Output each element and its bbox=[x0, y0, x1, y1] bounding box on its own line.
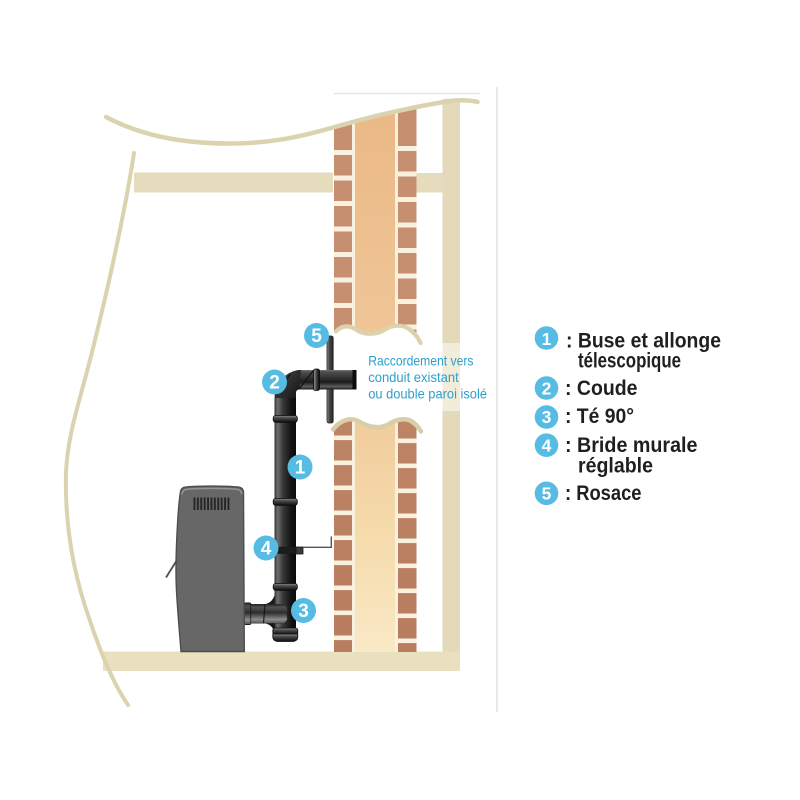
svg-text:5: 5 bbox=[311, 326, 322, 347]
svg-text:télescopique: télescopique bbox=[578, 350, 681, 373]
svg-text:5: 5 bbox=[542, 484, 552, 504]
svg-text:: Té 90°: : Té 90° bbox=[565, 405, 634, 428]
svg-text:3: 3 bbox=[298, 601, 309, 622]
svg-text:conduit existant: conduit existant bbox=[368, 370, 459, 385]
svg-text:: Rosace: : Rosace bbox=[565, 482, 642, 505]
svg-text:4: 4 bbox=[542, 436, 552, 456]
svg-text:réglable: réglable bbox=[578, 455, 653, 478]
svg-text:ou double paroi isolé: ou double paroi isolé bbox=[368, 386, 487, 401]
svg-text:3: 3 bbox=[542, 407, 552, 427]
svg-text:1: 1 bbox=[542, 329, 552, 349]
svg-text:2: 2 bbox=[542, 379, 552, 399]
svg-text:: Coude: : Coude bbox=[565, 377, 638, 400]
svg-text:1: 1 bbox=[295, 458, 306, 479]
svg-text:Raccordement vers: Raccordement vers bbox=[368, 354, 473, 369]
svg-text:4: 4 bbox=[261, 539, 272, 560]
svg-text:2: 2 bbox=[269, 373, 280, 394]
